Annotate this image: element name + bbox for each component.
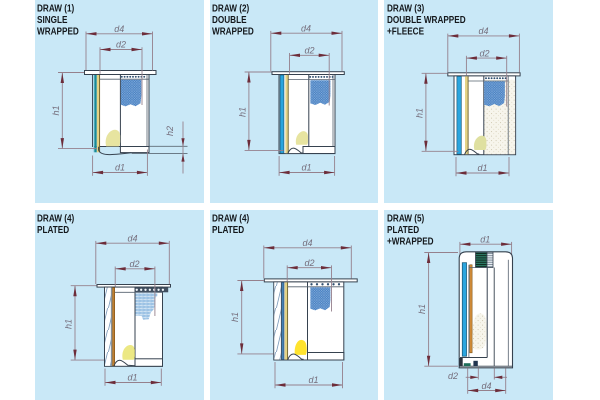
svg-text:d2: d2 xyxy=(479,48,489,58)
svg-text:DRAW (5): DRAW (5) xyxy=(387,211,424,223)
svg-text:h1: h1 xyxy=(51,105,61,115)
svg-text:PLATED: PLATED xyxy=(37,223,69,235)
svg-text:+FLEECE: +FLEECE xyxy=(387,24,424,36)
svg-text:h1: h1 xyxy=(237,107,247,117)
svg-text:SINGLE: SINGLE xyxy=(37,13,67,25)
svg-text:d4: d4 xyxy=(481,381,491,391)
svg-text:d2: d2 xyxy=(304,46,314,56)
svg-text:d4: d4 xyxy=(478,26,488,36)
svg-text:d1: d1 xyxy=(480,234,490,244)
svg-text:h1: h1 xyxy=(230,312,240,322)
svg-text:PLATED: PLATED xyxy=(387,223,419,235)
svg-text:d4: d4 xyxy=(114,24,124,34)
svg-text:WRAPPED: WRAPPED xyxy=(212,24,254,36)
svg-text:d2: d2 xyxy=(448,371,458,381)
svg-text:DOUBLE WRAPPED: DOUBLE WRAPPED xyxy=(387,13,466,25)
svg-text:DRAW (2): DRAW (2) xyxy=(212,1,249,13)
svg-text:d1: d1 xyxy=(127,373,137,383)
svg-text:d4: d4 xyxy=(301,23,311,33)
svg-text:d2: d2 xyxy=(116,40,126,50)
svg-text:d1: d1 xyxy=(308,375,318,385)
svg-text:DRAW (4): DRAW (4) xyxy=(212,211,249,223)
svg-text:DRAW (4): DRAW (4) xyxy=(37,211,74,223)
svg-text:d1: d1 xyxy=(301,163,311,173)
svg-text:DRAW (3): DRAW (3) xyxy=(387,1,424,13)
svg-text:h1: h1 xyxy=(417,304,427,314)
svg-text:DOUBLE: DOUBLE xyxy=(212,13,247,25)
svg-text:d2: d2 xyxy=(304,258,314,268)
svg-text:h1: h1 xyxy=(414,108,424,118)
svg-text:d2: d2 xyxy=(129,259,139,269)
svg-text:d1: d1 xyxy=(115,163,125,173)
svg-text:h1: h1 xyxy=(64,319,74,329)
svg-text:d1: d1 xyxy=(477,163,487,173)
svg-text:WRAPPED: WRAPPED xyxy=(37,24,79,36)
svg-text:d4: d4 xyxy=(127,233,137,243)
svg-text:PLATED: PLATED xyxy=(212,223,244,235)
svg-text:h2: h2 xyxy=(165,126,175,136)
svg-text:d4: d4 xyxy=(302,238,312,248)
svg-text:+WRAPPED: +WRAPPED xyxy=(387,234,434,246)
svg-text:DRAW (1): DRAW (1) xyxy=(37,1,74,13)
